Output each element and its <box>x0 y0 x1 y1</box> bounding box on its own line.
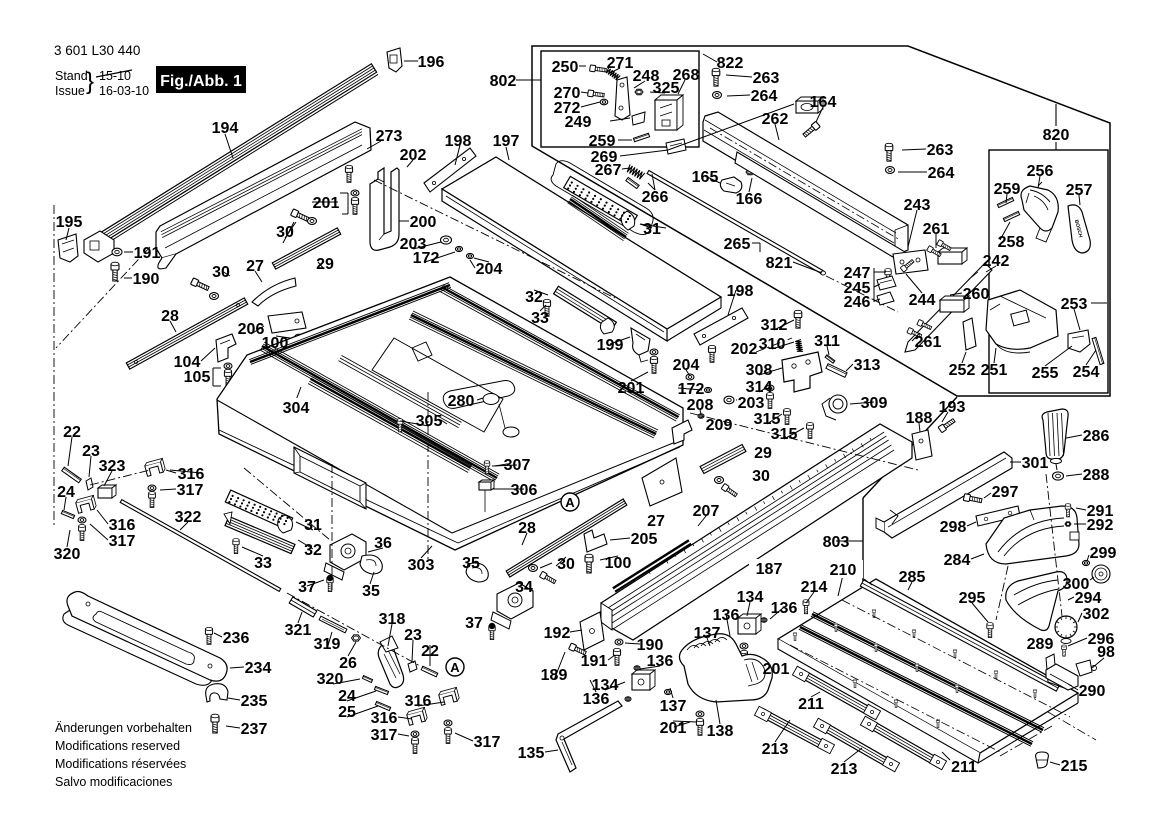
svg-text:32: 32 <box>525 289 543 306</box>
svg-text:317: 317 <box>109 533 136 550</box>
svg-text:201: 201 <box>660 720 687 737</box>
svg-text:262: 262 <box>762 111 789 128</box>
svg-text:134: 134 <box>737 589 764 606</box>
svg-text:299: 299 <box>1090 545 1117 562</box>
svg-text:Modifications réservées: Modifications réservées <box>55 757 186 771</box>
svg-text:136: 136 <box>647 653 674 670</box>
svg-text:193: 193 <box>939 399 966 416</box>
svg-text:261: 261 <box>915 334 942 351</box>
svg-text:198: 198 <box>445 133 472 150</box>
svg-text:199: 199 <box>597 337 624 354</box>
svg-text:203: 203 <box>738 395 765 412</box>
svg-text:26: 26 <box>339 655 357 672</box>
svg-text:Issue: Issue <box>55 84 85 98</box>
svg-text:190: 190 <box>637 637 664 654</box>
svg-text:308: 308 <box>746 362 773 379</box>
svg-text:135: 135 <box>518 745 545 762</box>
svg-text:210: 210 <box>830 562 857 579</box>
svg-text:303: 303 <box>408 557 435 574</box>
svg-text:195: 195 <box>56 214 83 231</box>
svg-text:237: 237 <box>241 721 268 738</box>
svg-text:136: 136 <box>713 607 740 624</box>
svg-text:189: 189 <box>541 667 568 684</box>
svg-text:257: 257 <box>1066 182 1093 199</box>
svg-text:100: 100 <box>605 555 632 572</box>
svg-text:200: 200 <box>410 214 437 231</box>
svg-text:205: 205 <box>631 531 658 548</box>
svg-text:3 601 L30 440: 3 601 L30 440 <box>54 43 140 58</box>
svg-text:243: 243 <box>904 197 931 214</box>
svg-text:251: 251 <box>981 362 1008 379</box>
svg-text:306: 306 <box>511 482 538 499</box>
svg-text:192: 192 <box>544 625 571 642</box>
svg-text:213: 213 <box>831 761 858 778</box>
svg-text:259: 259 <box>589 133 616 150</box>
svg-text:317: 317 <box>474 734 501 751</box>
svg-text:289: 289 <box>1027 636 1054 653</box>
svg-text:Stand: Stand <box>55 69 88 83</box>
svg-text:265: 265 <box>724 236 751 253</box>
svg-text:Salvo modificaciones: Salvo modificaciones <box>55 775 172 789</box>
svg-text:234: 234 <box>245 660 272 677</box>
svg-text:166: 166 <box>736 191 763 208</box>
svg-text:803: 803 <box>823 534 850 551</box>
svg-text:136: 136 <box>771 600 798 617</box>
svg-text:249: 249 <box>565 114 592 131</box>
svg-text:198: 198 <box>727 283 754 300</box>
svg-text:188: 188 <box>906 410 933 427</box>
svg-text:28: 28 <box>518 520 536 537</box>
svg-text:821: 821 <box>766 255 793 272</box>
svg-text:191: 191 <box>581 653 608 670</box>
svg-text:254: 254 <box>1073 364 1100 381</box>
svg-text:190: 190 <box>133 271 160 288</box>
svg-text:24: 24 <box>57 484 75 501</box>
svg-text:204: 204 <box>476 261 503 278</box>
svg-text:32: 32 <box>304 542 322 559</box>
svg-text:316: 316 <box>371 710 398 727</box>
svg-text:267: 267 <box>595 162 622 179</box>
svg-text:33: 33 <box>254 555 272 572</box>
svg-text:256: 256 <box>1027 163 1054 180</box>
svg-text:822: 822 <box>717 55 744 72</box>
svg-text:211: 211 <box>951 759 977 776</box>
svg-text:31: 31 <box>643 221 661 238</box>
svg-text:316: 316 <box>405 693 432 710</box>
svg-text:246: 246 <box>844 294 871 311</box>
svg-text:266: 266 <box>642 189 669 206</box>
svg-text:24: 24 <box>338 688 356 705</box>
svg-text:136: 136 <box>583 691 610 708</box>
svg-text:31: 31 <box>304 517 322 534</box>
svg-text:206: 206 <box>238 321 265 338</box>
svg-text:194: 194 <box>212 120 239 137</box>
svg-text:250: 250 <box>552 59 579 76</box>
svg-text:37: 37 <box>298 579 316 596</box>
svg-text:314: 314 <box>746 379 773 396</box>
svg-text:271: 271 <box>607 55 634 72</box>
svg-text:35: 35 <box>362 583 380 600</box>
svg-text:28: 28 <box>161 308 179 325</box>
svg-text:260: 260 <box>963 286 990 303</box>
svg-text:252: 252 <box>949 362 976 379</box>
svg-text:A: A <box>565 495 575 510</box>
svg-text:259: 259 <box>994 181 1021 198</box>
svg-text:209: 209 <box>706 417 733 434</box>
svg-text:317: 317 <box>177 482 204 499</box>
svg-text:261: 261 <box>923 221 950 238</box>
svg-text:197: 197 <box>493 133 520 150</box>
svg-text:320: 320 <box>317 671 344 688</box>
svg-text:137: 137 <box>694 625 721 642</box>
svg-text:311: 311 <box>814 333 840 350</box>
svg-text:244: 244 <box>909 292 936 309</box>
svg-text:264: 264 <box>928 165 955 182</box>
svg-text:305: 305 <box>416 413 443 430</box>
svg-text:264: 264 <box>751 88 778 105</box>
svg-text:30: 30 <box>752 468 770 485</box>
svg-text:Modifications reserved: Modifications reserved <box>55 739 180 753</box>
svg-text:316: 316 <box>178 466 205 483</box>
svg-text:A: A <box>450 660 460 675</box>
svg-text:34: 34 <box>515 579 533 596</box>
svg-text:215: 215 <box>1061 758 1088 775</box>
svg-text:820: 820 <box>1043 127 1070 144</box>
svg-text:138: 138 <box>707 723 734 740</box>
svg-text:105: 105 <box>184 369 211 386</box>
svg-text:301: 301 <box>1022 455 1049 472</box>
svg-text:255: 255 <box>1032 365 1059 382</box>
svg-text:297: 297 <box>992 484 1019 501</box>
svg-text:322: 322 <box>175 509 202 526</box>
svg-text:164: 164 <box>810 94 837 111</box>
svg-text:208: 208 <box>687 397 714 414</box>
svg-text:23: 23 <box>404 627 422 644</box>
svg-text:214: 214 <box>801 579 828 596</box>
svg-text:211: 211 <box>798 696 824 713</box>
svg-text:284: 284 <box>944 552 971 569</box>
svg-text:204: 204 <box>673 357 700 374</box>
svg-text:22: 22 <box>421 643 439 660</box>
svg-text:36: 36 <box>374 535 392 552</box>
svg-text:22: 22 <box>63 424 81 441</box>
svg-text:27: 27 <box>647 513 665 530</box>
svg-text:307: 307 <box>504 457 531 474</box>
svg-text:196: 196 <box>418 54 445 71</box>
svg-text:98: 98 <box>1097 644 1115 661</box>
svg-text:304: 304 <box>283 400 310 417</box>
svg-text:288: 288 <box>1083 467 1110 484</box>
svg-text:318: 318 <box>379 611 406 628</box>
svg-text:316: 316 <box>109 517 136 534</box>
svg-text:30: 30 <box>557 556 575 573</box>
svg-text:30: 30 <box>276 224 294 241</box>
svg-text:165: 165 <box>692 169 719 186</box>
svg-text:207: 207 <box>693 503 720 520</box>
svg-text:137: 137 <box>660 698 687 715</box>
svg-text:25: 25 <box>338 704 356 721</box>
svg-text:187: 187 <box>756 561 783 578</box>
svg-text:35: 35 <box>462 555 480 572</box>
svg-text:201: 201 <box>763 661 790 678</box>
svg-text:313: 313 <box>854 357 881 374</box>
svg-text:321: 321 <box>285 622 312 639</box>
svg-text:37: 37 <box>465 615 483 632</box>
svg-text:236: 236 <box>223 630 250 647</box>
svg-text:320: 320 <box>54 546 81 563</box>
svg-text:323: 323 <box>99 458 126 475</box>
svg-text:285: 285 <box>899 569 926 586</box>
svg-text:302: 302 <box>1083 606 1110 623</box>
svg-text:286: 286 <box>1083 428 1110 445</box>
svg-text:191: 191 <box>134 245 161 262</box>
svg-text:29: 29 <box>754 445 772 462</box>
svg-text:273: 273 <box>376 128 403 145</box>
svg-text:317: 317 <box>371 727 398 744</box>
svg-text:312: 312 <box>761 317 788 334</box>
svg-text:213: 213 <box>762 741 789 758</box>
svg-text:325: 325 <box>653 80 680 97</box>
svg-text:30: 30 <box>212 264 230 281</box>
svg-text:201: 201 <box>313 195 340 212</box>
svg-text:33: 33 <box>531 310 549 327</box>
svg-text:172: 172 <box>678 381 705 398</box>
svg-text:100: 100 <box>262 335 289 352</box>
svg-text:202: 202 <box>400 147 427 164</box>
svg-text:172: 172 <box>413 250 440 267</box>
svg-text:16-03-10: 16-03-10 <box>99 84 149 98</box>
svg-text:290: 290 <box>1079 683 1106 700</box>
svg-text:802: 802 <box>490 73 517 90</box>
svg-text:27: 27 <box>246 258 264 275</box>
svg-text:Fig./Abb. 1: Fig./Abb. 1 <box>160 73 242 90</box>
svg-text:315: 315 <box>771 426 798 443</box>
svg-text:309: 309 <box>861 395 888 412</box>
svg-text:29: 29 <box>316 256 334 273</box>
svg-text:292: 292 <box>1087 517 1114 534</box>
svg-text:242: 242 <box>983 253 1010 270</box>
svg-text:}: } <box>86 68 94 95</box>
svg-text:280: 280 <box>448 393 475 410</box>
svg-text:235: 235 <box>241 693 268 710</box>
svg-text:298: 298 <box>940 519 967 536</box>
svg-text:310: 310 <box>759 336 786 353</box>
svg-text:Änderungen vorbehalten: Änderungen vorbehalten <box>55 721 192 735</box>
svg-text:294: 294 <box>1075 590 1102 607</box>
svg-text:23: 23 <box>82 443 100 460</box>
svg-text:263: 263 <box>753 70 780 87</box>
svg-text:253: 253 <box>1061 296 1088 313</box>
svg-text:295: 295 <box>959 590 986 607</box>
svg-text:202: 202 <box>731 341 758 358</box>
svg-text:201: 201 <box>618 380 645 397</box>
svg-text:258: 258 <box>998 234 1025 251</box>
svg-text:319: 319 <box>314 636 341 653</box>
svg-text:263: 263 <box>927 142 954 159</box>
